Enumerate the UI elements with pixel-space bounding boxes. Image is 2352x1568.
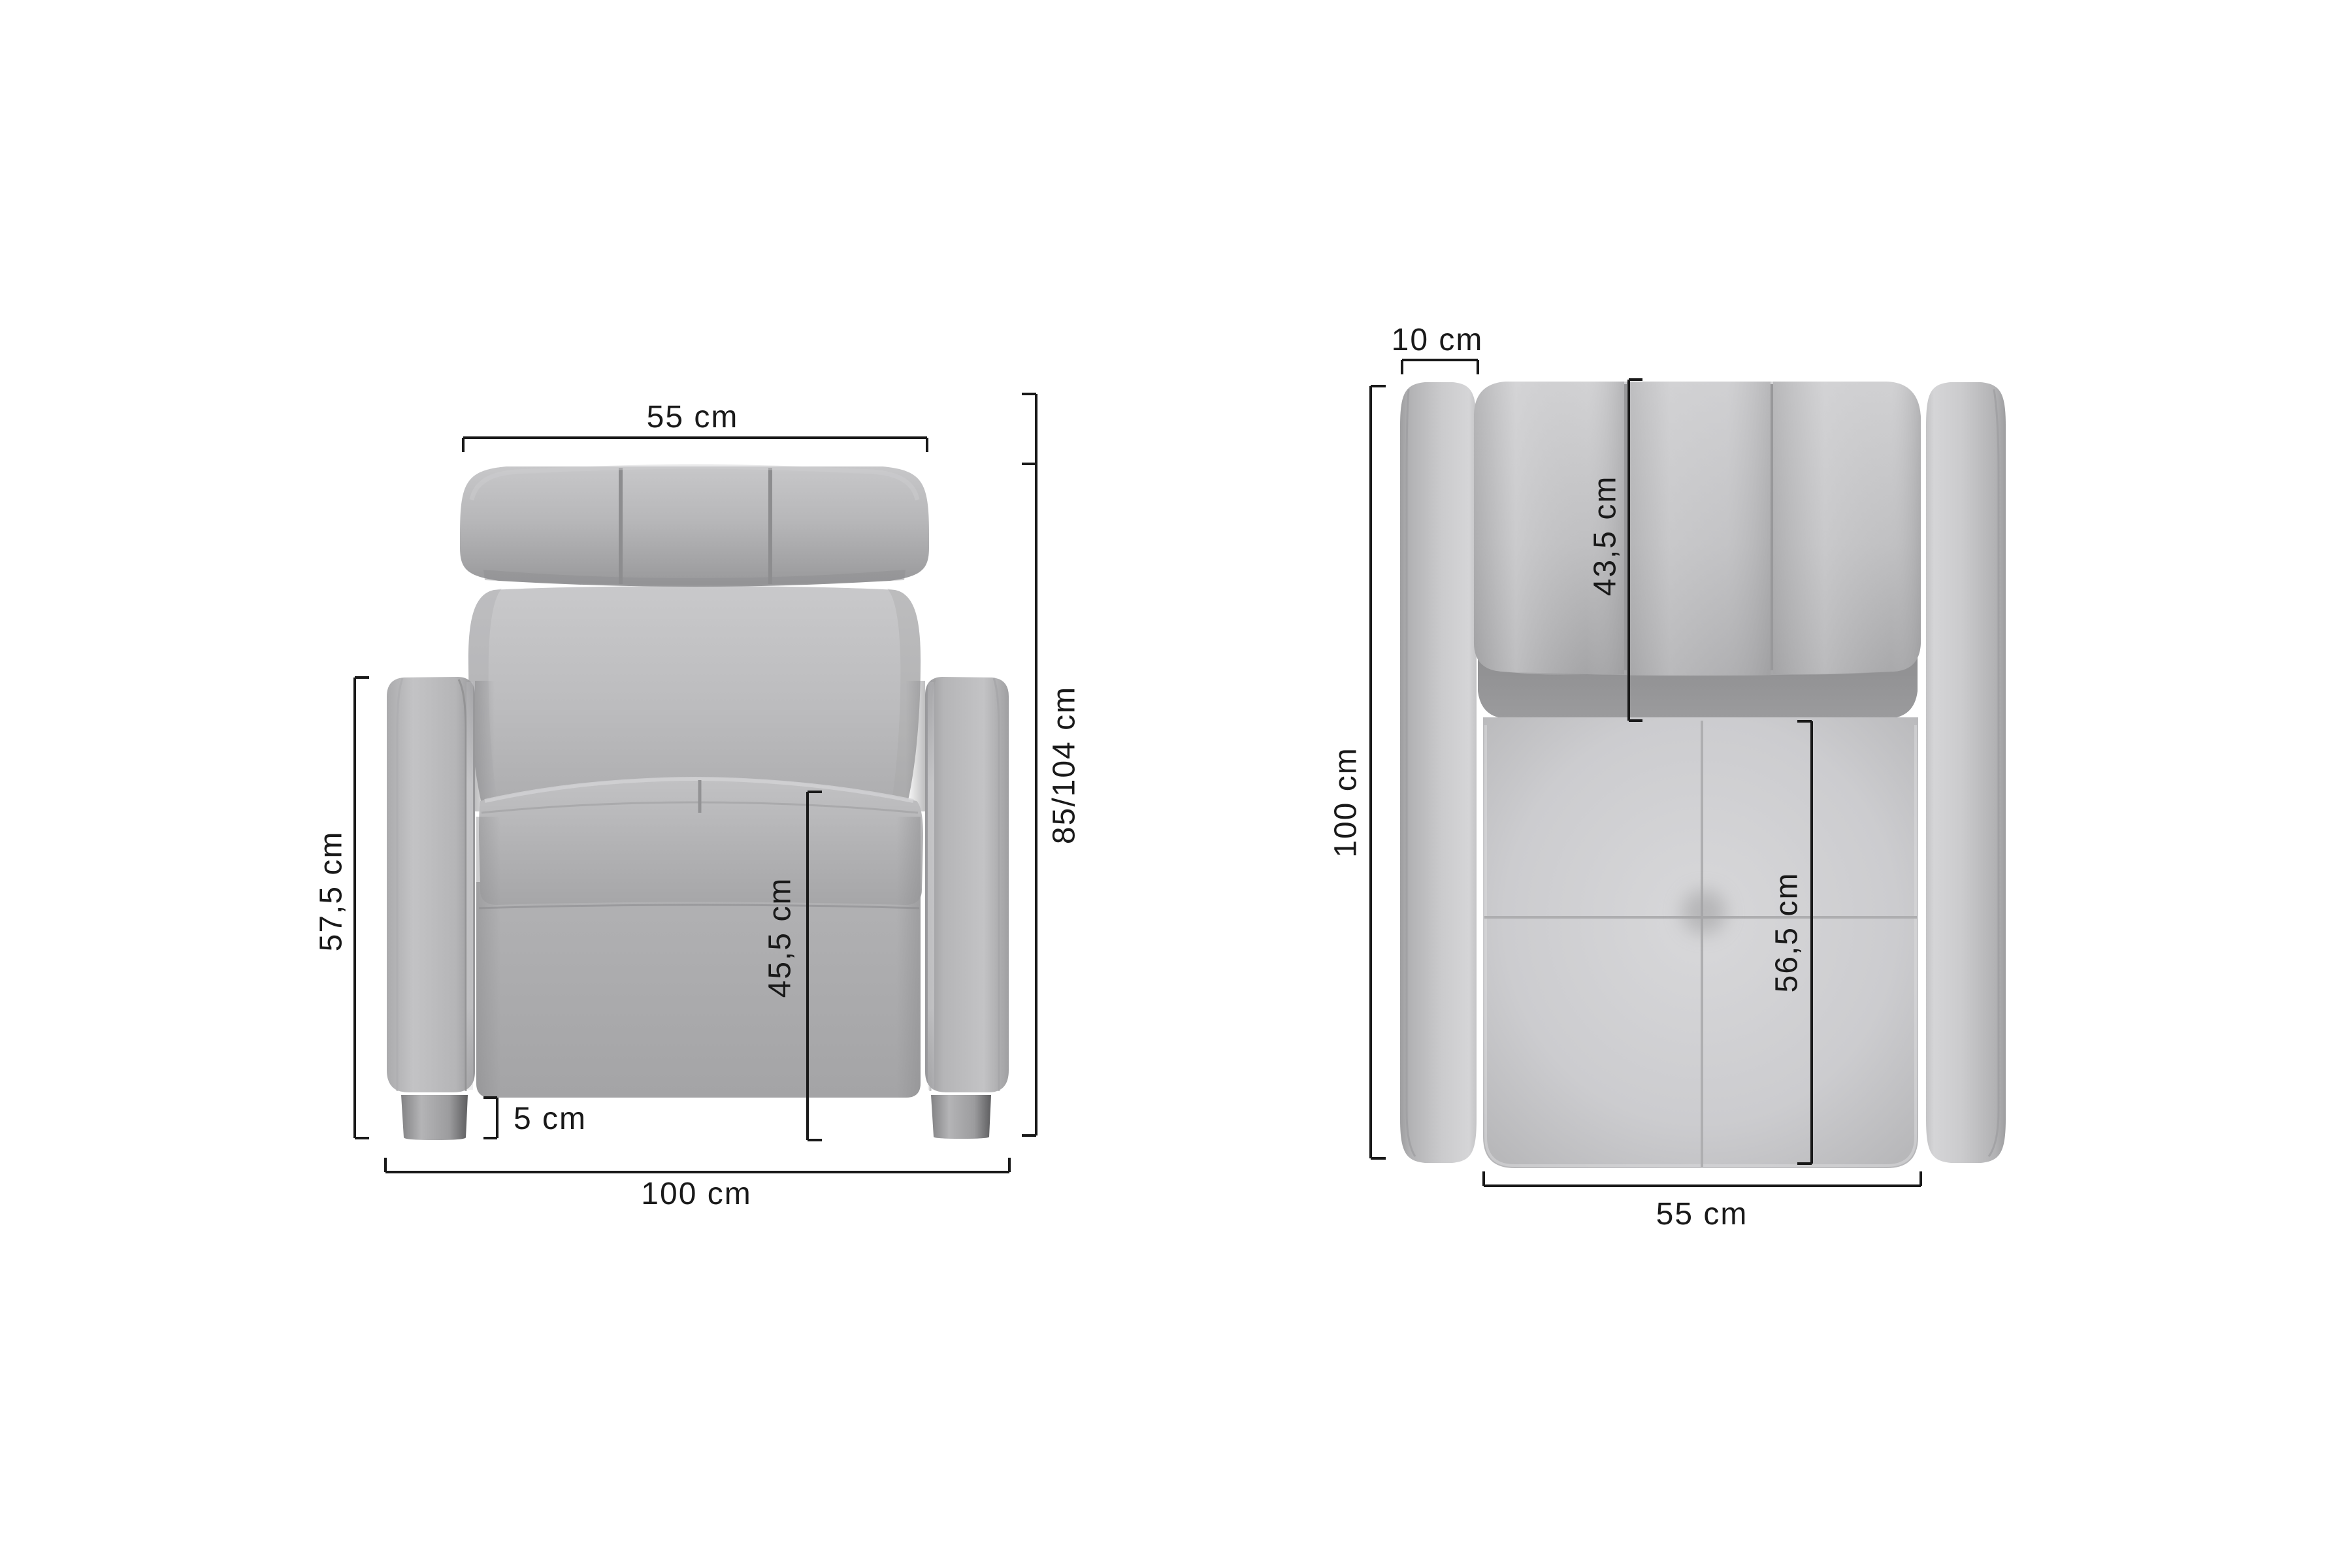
svg-text:85/104 cm: 85/104 cm xyxy=(1047,686,1082,844)
svg-text:5 cm: 5 cm xyxy=(514,1102,587,1136)
svg-text:56,5 cm: 56,5 cm xyxy=(1770,872,1805,993)
svg-text:55 cm: 55 cm xyxy=(647,400,739,434)
svg-text:55 cm: 55 cm xyxy=(1656,1197,1748,1232)
svg-text:10 cm: 10 cm xyxy=(1392,323,1484,357)
svg-text:43,5 cm: 43,5 cm xyxy=(1588,476,1623,596)
svg-text:57,5 cm: 57,5 cm xyxy=(314,831,349,952)
svg-text:45,5 cm: 45,5 cm xyxy=(763,877,798,998)
svg-text:100 cm: 100 cm xyxy=(1329,747,1364,857)
svg-text:100 cm: 100 cm xyxy=(641,1177,751,1211)
